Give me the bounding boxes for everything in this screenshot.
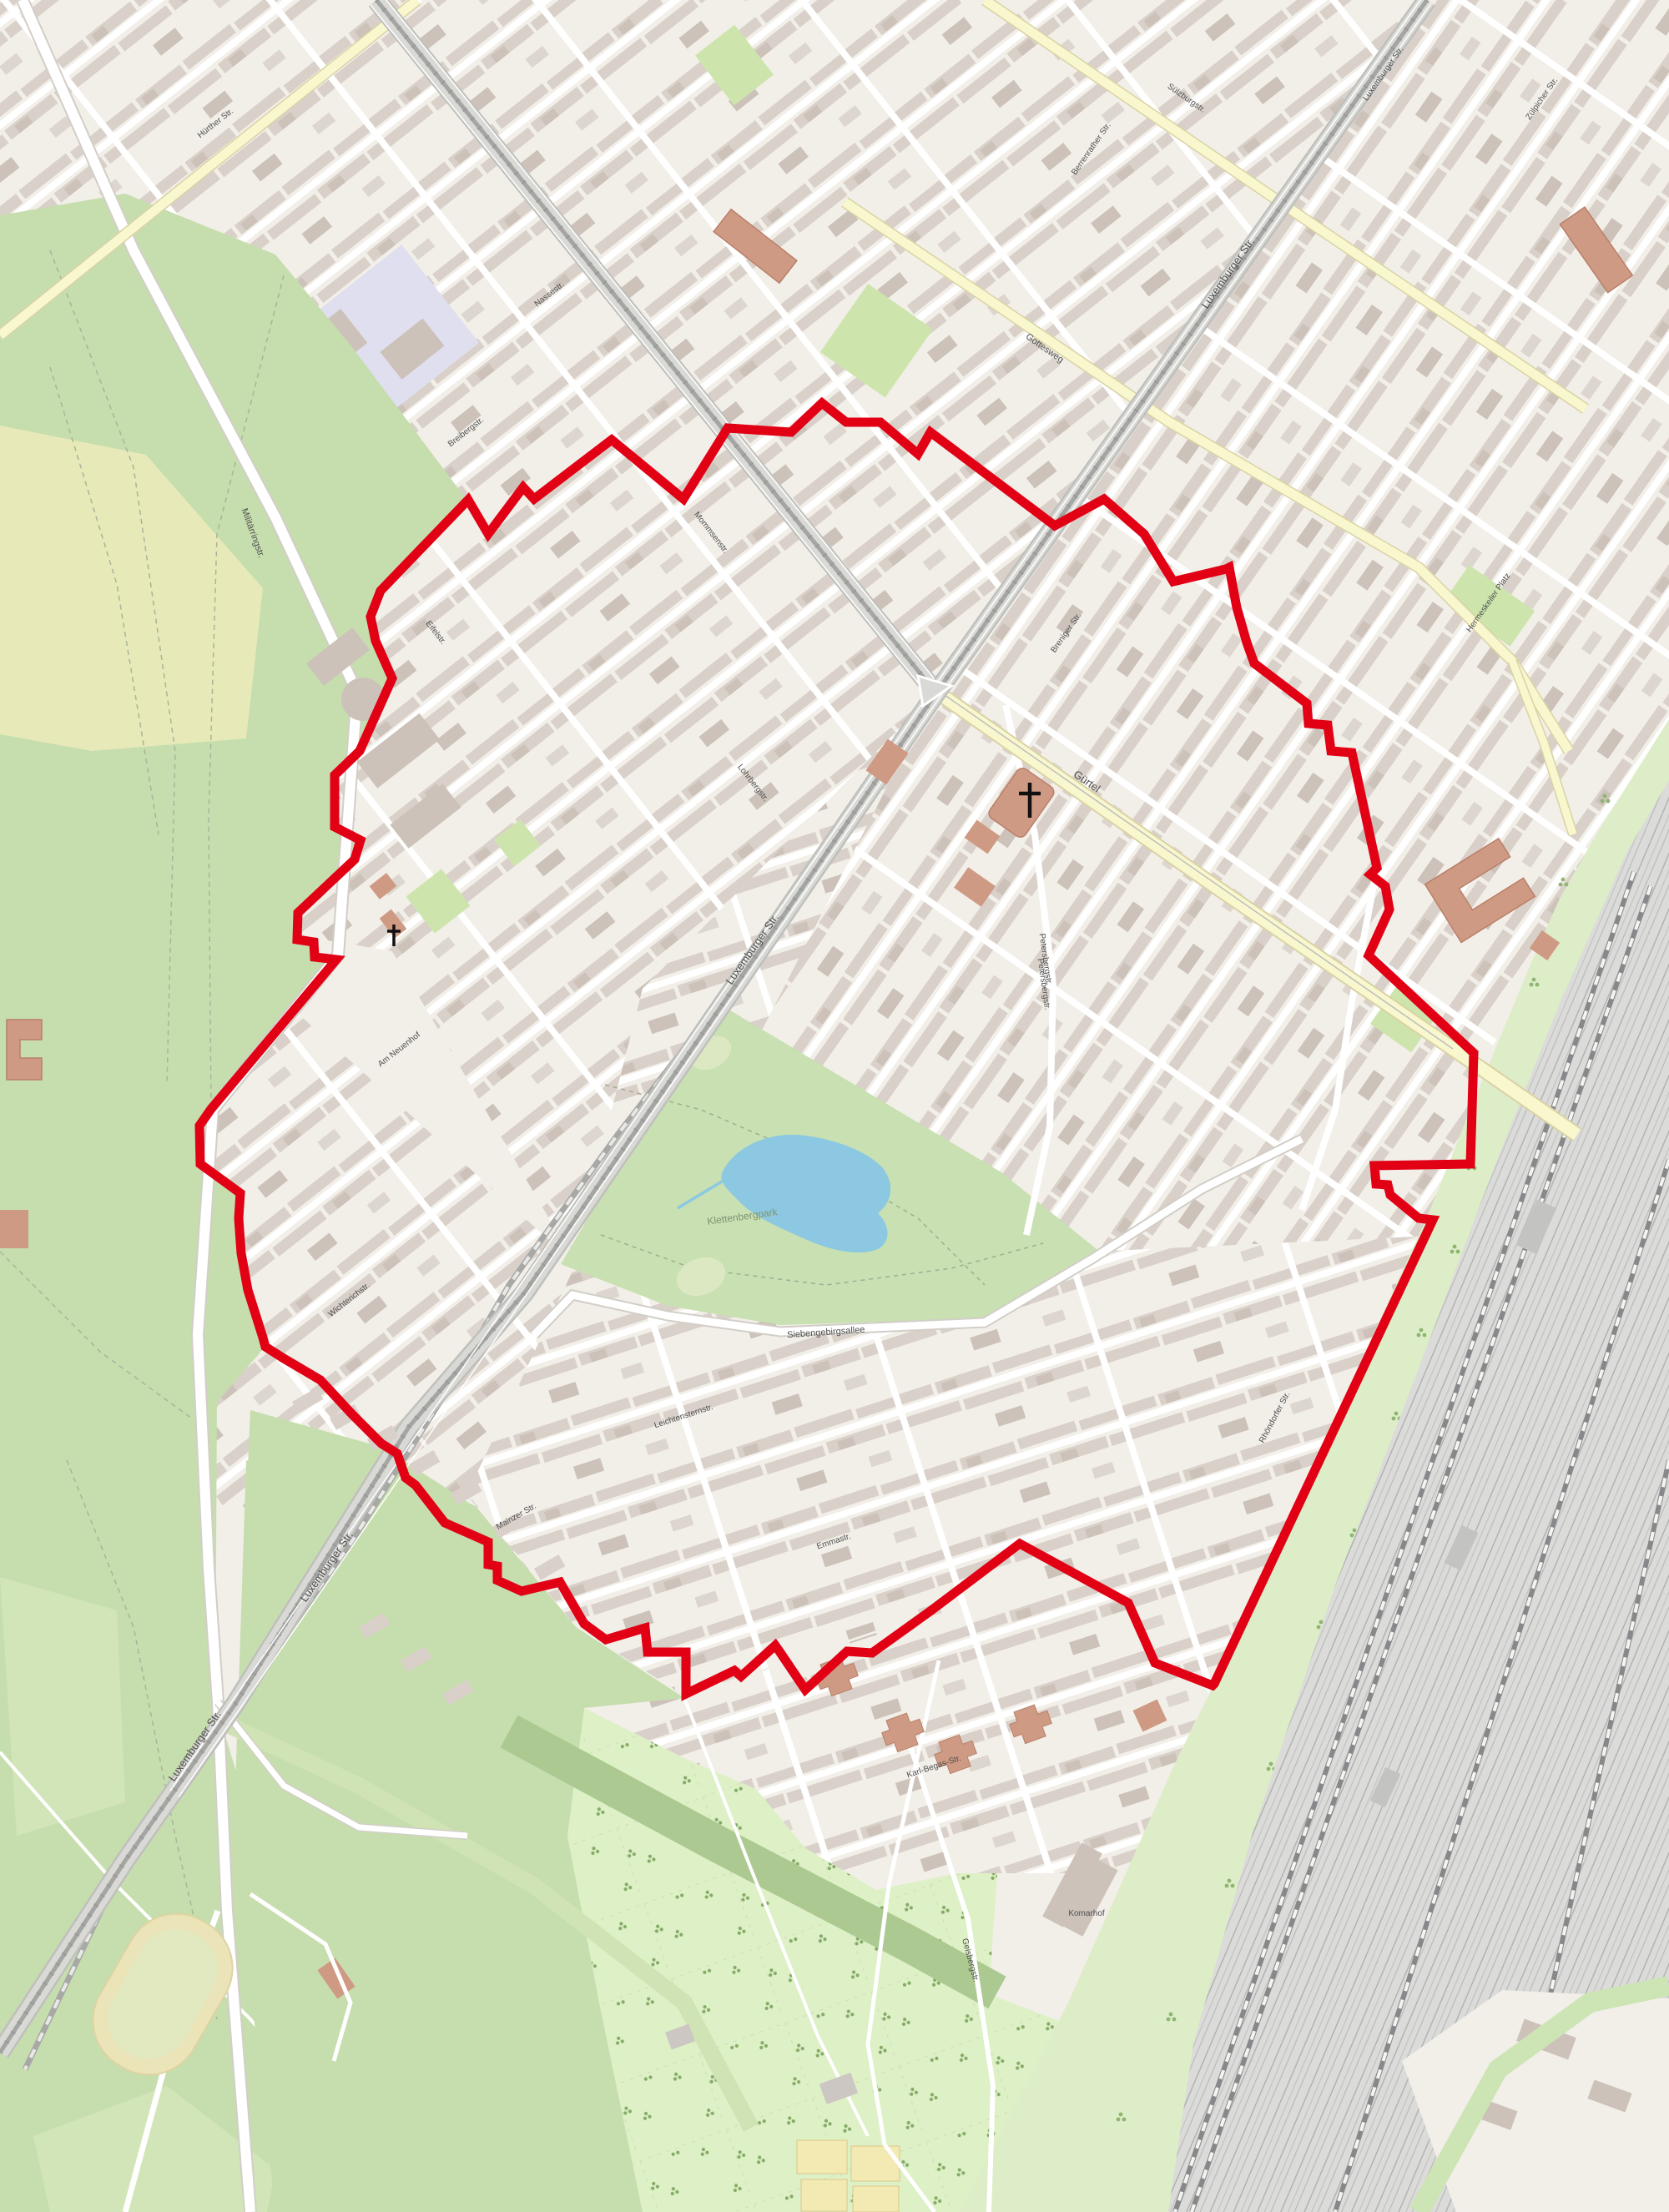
svg-text:Komarhof: Komarhof bbox=[1068, 1909, 1105, 1918]
